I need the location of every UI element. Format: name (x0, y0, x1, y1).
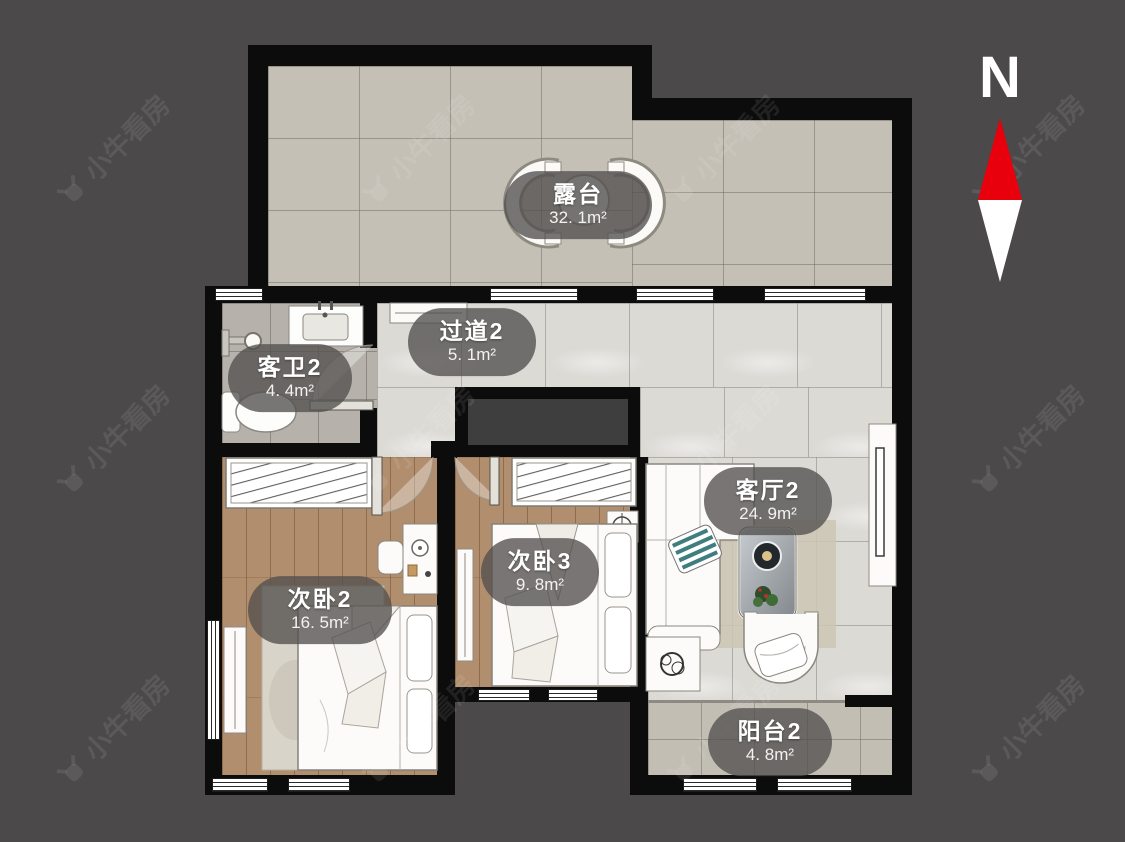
bedroom2-window-sill (224, 627, 246, 733)
coffee-table (739, 527, 796, 619)
bedroom3-wardrobe (512, 458, 636, 506)
room-label-balcony: 阳台2 4. 8m² (708, 708, 832, 776)
room-label-living: 客厅2 24. 9m² (704, 467, 832, 535)
room-label-bedroom3: 次卧3 9. 8m² (481, 538, 599, 606)
room-area: 4. 8m² (722, 745, 818, 766)
bedroom3-shelf (457, 549, 473, 661)
side-table-plant (646, 637, 700, 691)
bedroom2-wardrobe (226, 458, 372, 508)
room-name: 客厅2 (718, 477, 818, 503)
room-name: 次卧3 (495, 548, 585, 574)
room-area: 16. 5m² (262, 613, 378, 634)
room-area: 4. 4m² (242, 381, 338, 402)
bathroom-sink (289, 301, 363, 346)
room-area: 32. 1m² (518, 208, 638, 229)
armchair (744, 612, 818, 683)
compass-needle-icon (977, 116, 1023, 284)
compass-north-label: N (960, 44, 1040, 111)
room-area: 24. 9m² (718, 504, 818, 525)
room-name: 客卫2 (242, 354, 338, 380)
room-label-bathroom: 客卫2 4. 4m² (228, 344, 352, 412)
bedroom3-door (455, 457, 499, 505)
tv-unit (869, 424, 896, 586)
room-area: 9. 8m² (495, 575, 585, 596)
room-area: 5. 1m² (422, 345, 522, 366)
room-label-bedroom2: 次卧2 16. 5m² (248, 576, 392, 644)
bedroom2-desk (403, 524, 437, 594)
room-name: 次卧2 (262, 586, 378, 612)
floor-plan: 小牛看房 小牛看房 小牛看房 小牛看房 小牛看房 小牛看房 小牛看房 小牛看房 … (0, 0, 1125, 842)
room-name: 过道2 (422, 318, 522, 344)
bedroom2-door (372, 457, 433, 515)
bedroom2-chair (378, 541, 403, 574)
room-label-hallway: 过道2 5. 1m² (408, 308, 536, 376)
room-name: 阳台2 (722, 718, 818, 744)
room-name: 露台 (518, 181, 638, 207)
furniture-layer (0, 0, 1125, 842)
room-label-terrace: 露台 32. 1m² (504, 171, 652, 239)
